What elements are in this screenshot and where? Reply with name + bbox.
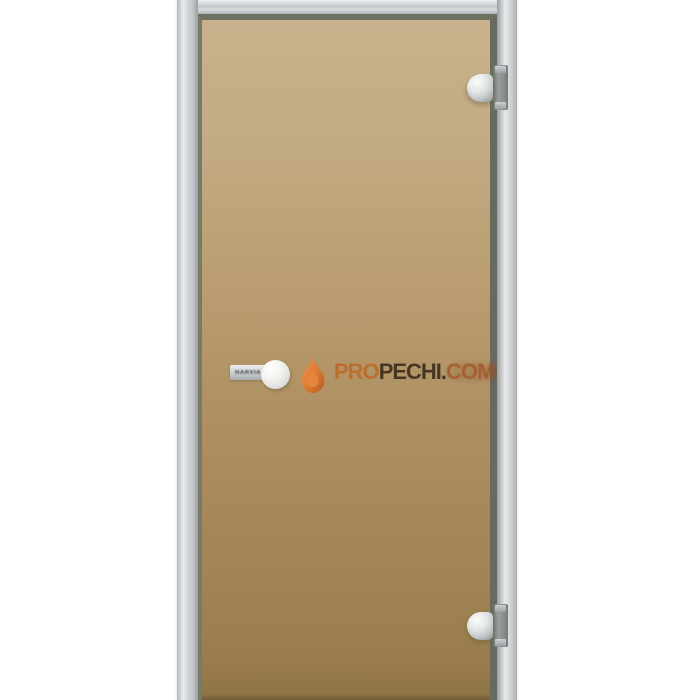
watermark-text-pechi: PECHI. [379, 359, 446, 385]
glass-bottom-shadow [202, 694, 490, 700]
hinge-top-screw-upper [495, 66, 506, 73]
hinge-top-dome [467, 74, 493, 102]
door-handle-knob [261, 360, 290, 389]
hinge-bottom-screw-upper [495, 605, 506, 612]
product-photo: PRO PECHI. COM HARVIA [0, 0, 700, 700]
handle-brand-label-text: HARVIA [235, 370, 261, 376]
door-frame-top-rail [177, 0, 517, 14]
door-glass-gasket: PRO PECHI. COM HARVIA [198, 14, 497, 700]
hinge-bottom [467, 604, 508, 647]
watermark: PRO PECHI. COM [299, 351, 494, 395]
hinge-top [467, 65, 508, 110]
watermark-text-pro: PRO [334, 359, 379, 385]
flame-icon [299, 355, 327, 394]
door-glass-bronze: PRO PECHI. COM HARVIA [202, 20, 490, 700]
watermark-text-com: COM [446, 359, 494, 385]
hinge-top-screw-lower [495, 102, 506, 109]
sauna-glass-door: PRO PECHI. COM HARVIA [177, 0, 517, 700]
watermark-text: PRO PECHI. COM [334, 359, 494, 385]
door-frame-left-rail [177, 0, 198, 700]
hinge-bottom-screw-lower [495, 639, 506, 646]
hinge-bottom-dome [467, 612, 493, 640]
